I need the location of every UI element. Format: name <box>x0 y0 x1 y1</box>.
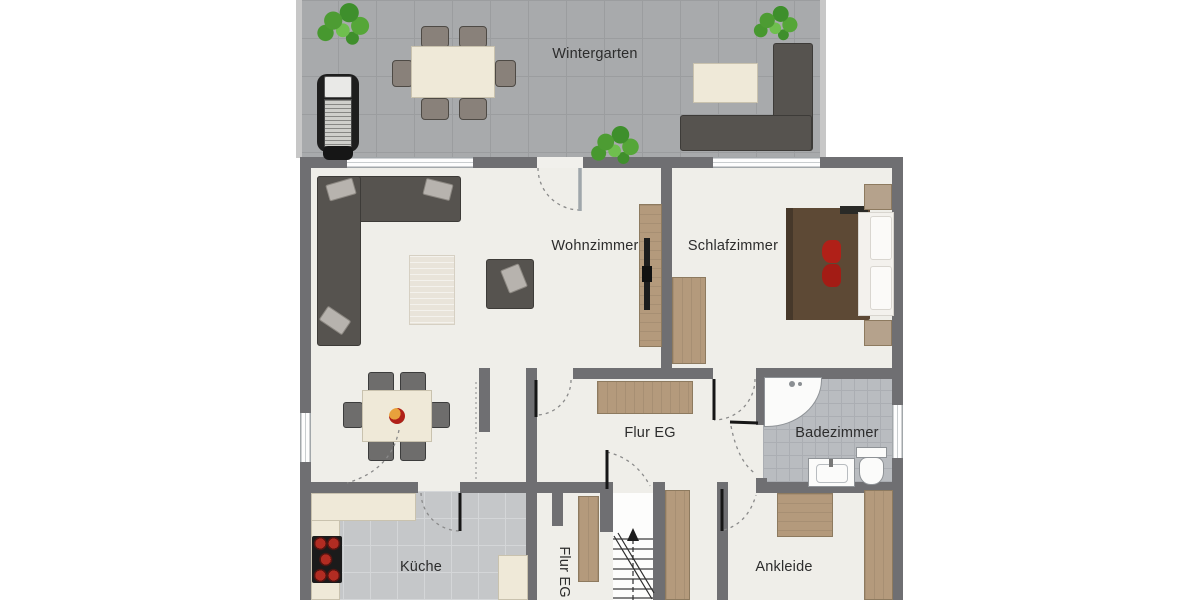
corner-sofa <box>680 115 812 151</box>
chair <box>459 98 487 120</box>
chair <box>400 440 426 461</box>
room-label-flur-treppe: Flur EG <box>556 546 572 597</box>
glass-wall <box>296 0 302 158</box>
kitchen-counter <box>498 555 528 600</box>
closet <box>665 490 690 600</box>
chair <box>368 440 394 461</box>
wall <box>473 157 537 168</box>
toilet-bowl <box>859 457 884 485</box>
plant <box>314 3 378 47</box>
red-cushion <box>822 264 841 287</box>
chair <box>495 60 516 87</box>
pillow <box>870 216 892 260</box>
chair <box>430 402 450 428</box>
window <box>347 157 473 168</box>
room-label-wohnzimmer: Wohnzimmer <box>551 238 638 254</box>
chair <box>421 98 449 120</box>
room-label-ankleide: Ankleide <box>755 559 812 575</box>
room-label-flur: Flur EG <box>624 425 675 441</box>
wall <box>820 157 903 168</box>
wall <box>661 168 672 379</box>
nightstand <box>864 320 892 346</box>
wall <box>672 368 713 379</box>
plant <box>751 6 805 42</box>
chair <box>459 26 487 48</box>
stair-landing <box>613 493 653 600</box>
wall <box>306 482 418 493</box>
room-label-badezimmer: Badezimmer <box>795 425 878 441</box>
shower-faucet <box>789 381 795 387</box>
wall <box>300 157 311 413</box>
wall <box>892 458 903 600</box>
window <box>892 405 903 458</box>
wall <box>573 368 672 379</box>
rug <box>409 255 455 325</box>
dining-table <box>411 46 495 98</box>
kitchen-counter <box>311 493 416 521</box>
floor-plan: Wintergarten Wohnzimmer Schlafzimmer Flu… <box>0 0 1200 600</box>
fruit-bowl <box>389 408 405 424</box>
double-bed <box>786 208 894 320</box>
door-opening <box>537 157 583 168</box>
side-table <box>693 63 758 103</box>
wall <box>653 482 665 600</box>
shower-faucet <box>798 382 802 386</box>
wardrobe <box>864 490 893 600</box>
closet <box>578 496 599 582</box>
glass-wall <box>820 0 826 158</box>
wardrobe <box>777 493 833 537</box>
red-cushion <box>822 240 841 263</box>
wall <box>479 368 490 432</box>
wardrobe <box>672 277 706 364</box>
tv-stand <box>642 266 652 282</box>
chair <box>343 402 363 428</box>
plant <box>588 126 647 166</box>
room-label-kueche: Küche <box>400 559 442 575</box>
chair <box>421 26 449 48</box>
window <box>713 157 820 168</box>
window <box>300 413 311 462</box>
room-label-wintergarten: Wintergarten <box>552 46 637 62</box>
wall <box>460 482 613 493</box>
wall <box>717 482 728 600</box>
chair <box>392 60 413 87</box>
pillow <box>870 266 892 310</box>
cooktop <box>312 536 342 583</box>
room-label-schlafzimmer: Schlafzimmer <box>688 238 778 254</box>
nightstand <box>864 184 892 210</box>
sideboard <box>597 381 693 414</box>
sink-tap <box>829 459 833 467</box>
wall <box>552 493 563 526</box>
grill <box>317 70 359 160</box>
